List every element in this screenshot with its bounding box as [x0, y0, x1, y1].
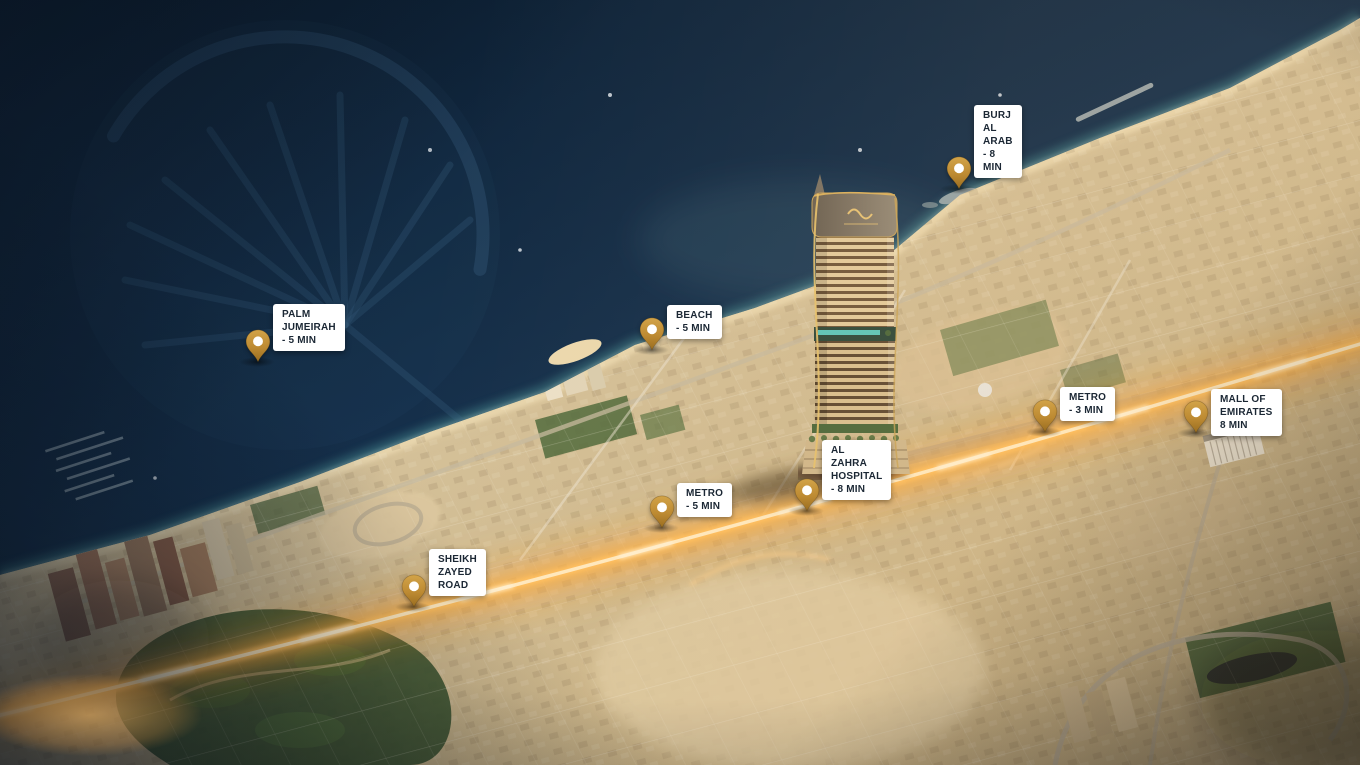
aerial-map-stage: BURJ AL ARAB - 8 MIN PALM JUMEIRAH - 5 M…: [0, 0, 1360, 765]
location-pin-icon: [401, 574, 427, 608]
development-tower: [798, 168, 914, 480]
dome-building: [978, 383, 992, 397]
location-pin-icon: [1032, 399, 1058, 433]
palm-jumeirah-island: [70, 20, 500, 450]
marker-label: BURJ AL ARAB - 8 MIN: [974, 105, 1022, 178]
location-pin-icon: [1183, 400, 1209, 434]
marker-label: AL ZAHRA HOSPITAL - 8 MIN: [822, 440, 891, 500]
location-pin-icon: [639, 317, 665, 351]
location-pin-icon: [794, 478, 820, 512]
marina-docks: [45, 426, 137, 505]
marker-label: BEACH - 5 MIN: [667, 305, 722, 339]
location-pin-icon: [245, 329, 271, 363]
location-pin-icon: [946, 156, 972, 190]
marker-label: METRO - 5 MIN: [677, 483, 732, 517]
marker-label: PALM JUMEIRAH - 5 MIN: [273, 304, 345, 351]
aerial-terrain: [0, 0, 1360, 765]
location-pin-icon: [649, 495, 675, 529]
marker-label: METRO - 3 MIN: [1060, 387, 1115, 421]
marker-label: MALL OF EMIRATES 8 MIN: [1211, 389, 1282, 436]
marker-label: SHEIKH ZAYED ROAD: [429, 549, 486, 596]
